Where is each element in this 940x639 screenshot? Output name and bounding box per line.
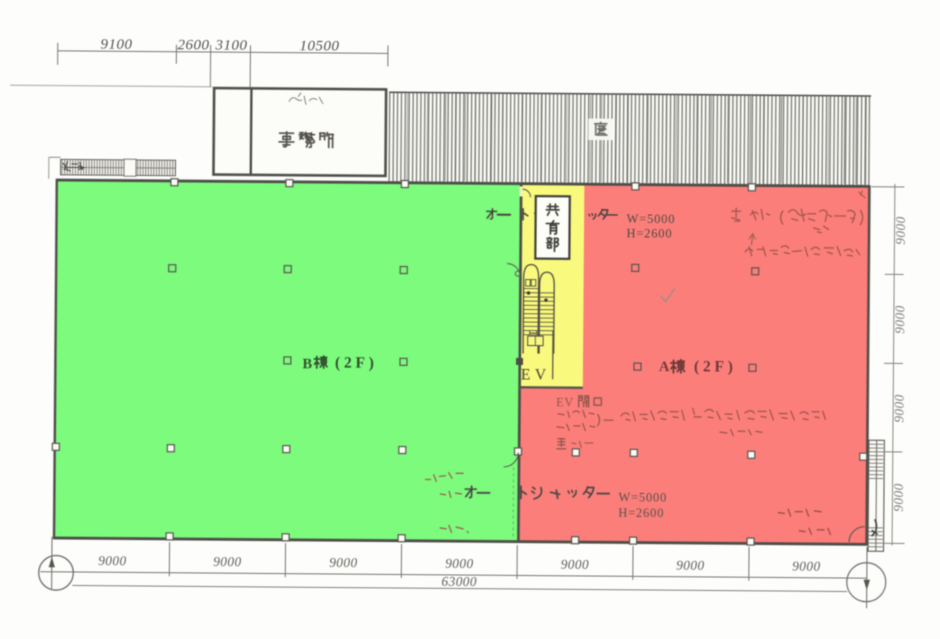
- svg-text:9000: 9000: [445, 556, 473, 571]
- svg-text:EV: EV: [521, 366, 551, 383]
- svg-text:3100: 3100: [214, 38, 247, 54]
- svg-text:2600: 2600: [177, 37, 209, 53]
- svg-text:(2F): (2F): [335, 355, 378, 372]
- svg-text:H=2600: H=2600: [626, 226, 672, 240]
- svg-text:9000: 9000: [892, 305, 907, 333]
- svg-text:9100: 9100: [100, 37, 132, 53]
- svg-text:63000: 63000: [441, 574, 477, 589]
- svg-text:9000: 9000: [561, 557, 589, 572]
- svg-text:9000: 9000: [213, 554, 241, 569]
- svg-text:9000: 9000: [792, 559, 820, 574]
- svg-text:9000: 9000: [893, 216, 908, 244]
- svg-text:9000: 9000: [892, 394, 907, 422]
- svg-text:EV: EV: [556, 395, 574, 409]
- svg-text:(2F): (2F): [694, 358, 737, 375]
- svg-text:W=5000: W=5000: [618, 490, 667, 504]
- svg-text:9000: 9000: [891, 483, 906, 511]
- svg-text:9000: 9000: [329, 555, 357, 570]
- svg-text:9000: 9000: [98, 553, 126, 568]
- svg-text:H=2600: H=2600: [618, 506, 664, 520]
- svg-text:B: B: [302, 356, 312, 372]
- svg-text:A: A: [659, 359, 670, 375]
- svg-text:W=5000: W=5000: [627, 212, 676, 226]
- svg-text:9000: 9000: [676, 558, 704, 573]
- svg-text:10500: 10500: [299, 38, 339, 54]
